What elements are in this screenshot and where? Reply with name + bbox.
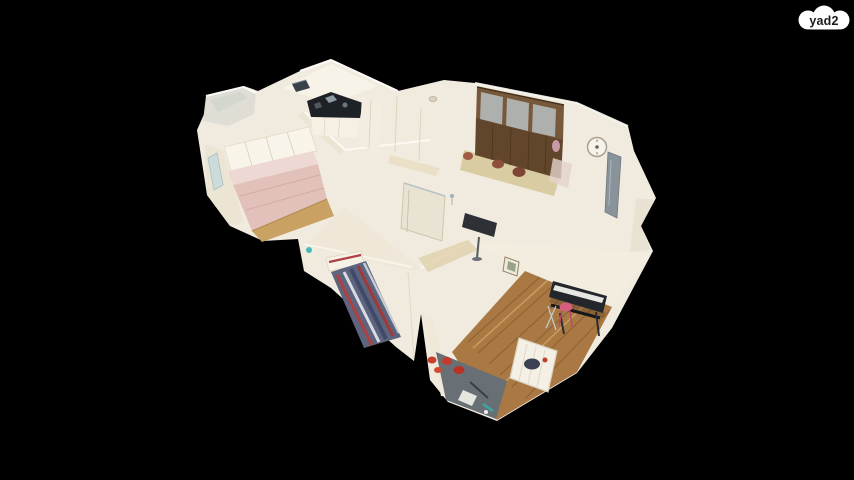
yad2-logo[interactable]: yad2 (797, 5, 851, 32)
dollhouse-viewport[interactable] (0, 0, 854, 480)
teal-object (306, 247, 312, 253)
wall-clock (588, 138, 607, 157)
wall-sconce (429, 97, 437, 102)
yad2-logo-text: yad2 (809, 14, 838, 28)
dollhouse-model (0, 0, 854, 480)
